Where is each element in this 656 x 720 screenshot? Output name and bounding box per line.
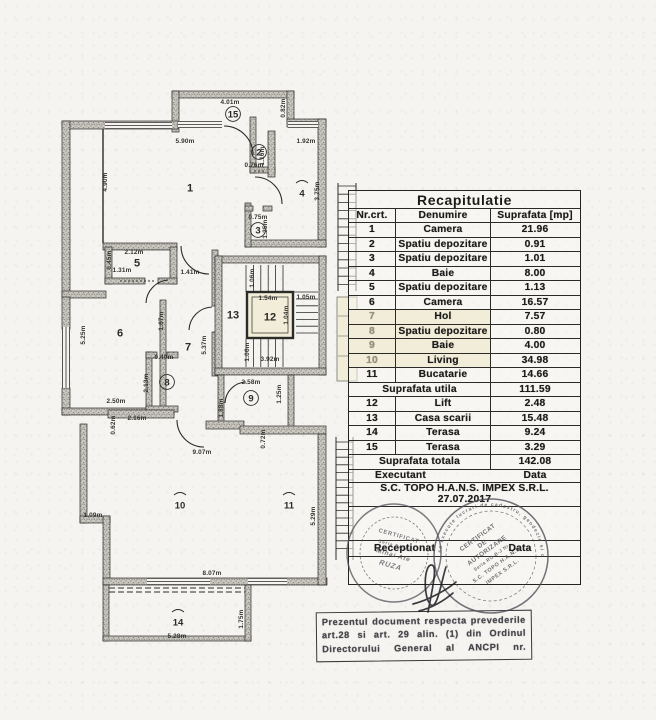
cell-denumire: Spatiu depozitare (396, 281, 491, 295)
table-row: 11Bucatarie14.66 (349, 368, 580, 383)
room-label-7: 7 (185, 341, 191, 353)
cell-denumire: Lift (396, 397, 491, 411)
cell-nr: 2 (349, 238, 396, 252)
dim-label: 3.92m (260, 356, 279, 363)
room-label-13: 13 (227, 309, 239, 321)
cell-nr: 14 (349, 426, 396, 440)
cell-suprafata: 3.29 (491, 441, 579, 455)
dim-label: 9.07m (192, 449, 211, 456)
cell-denumire: Baie (396, 339, 491, 353)
dim-label: 1.06m (244, 342, 251, 361)
cell-suprafata: 21.96 (491, 223, 579, 237)
dim-label: 5.25m (80, 325, 87, 344)
dim-label: 5.28m (167, 633, 186, 640)
table-row (349, 557, 580, 585)
table-row: 2Spatiu depozitare0.91 (349, 238, 580, 253)
cell-denumire: Baie (396, 267, 491, 281)
cell-denumire: Casa scarii (396, 412, 491, 426)
room-label-12: 12 (264, 311, 276, 323)
table-title: Recapitulatie (349, 191, 580, 209)
dim-label: 0.82m (280, 98, 287, 117)
dim-label: 1.06m (249, 268, 256, 287)
cell-nr: 9 (349, 339, 396, 353)
svg-text:9: 9 (248, 393, 253, 404)
legal-note-box: Prezentul document respecta prevederile … (316, 610, 533, 663)
svg-text:6: 6 (117, 327, 123, 339)
cell-nr: 8 (349, 325, 396, 339)
total-label: Suprafata totala (349, 455, 491, 469)
subtotal-label: Suprafata utila (349, 383, 491, 397)
table-row: ExecutantData (349, 470, 580, 484)
executant-data-label: Data (491, 470, 579, 483)
dim-label: 8.07m (202, 570, 221, 577)
cell-denumire: Spatiu depozitare (396, 325, 491, 339)
table-row: 7Hol7.57 (349, 310, 580, 325)
svg-text:12: 12 (264, 311, 276, 323)
cell-denumire: Terasa (396, 441, 491, 455)
table-row (349, 507, 580, 542)
executant-label: Executant (349, 470, 491, 483)
dim-label: 2.13m (143, 373, 150, 392)
cell-nr: 15 (349, 441, 396, 455)
cell-suprafata: 1.01 (491, 252, 579, 266)
dim-label: 1.09m (83, 512, 102, 519)
dim-label: 4.90m (102, 172, 109, 191)
dim-label: 1.88m (218, 398, 225, 417)
table-row: 12Lift2.48 (349, 397, 580, 412)
cell-suprafata: 8.00 (491, 267, 579, 281)
cell-denumire: Camera (396, 296, 491, 310)
cell-suprafata: 1.13 (491, 281, 579, 295)
svg-text:7: 7 (185, 341, 191, 353)
table-row: 8Spatiu depozitare0.80 (349, 325, 580, 340)
empty-cell (349, 557, 580, 585)
cell-nr: 6 (349, 296, 396, 310)
cell-suprafata: 2.48 (491, 397, 579, 411)
cell-suprafata: 7.57 (491, 310, 579, 324)
dim-label: 1.25m (276, 384, 283, 403)
dim-label: 1.67m (158, 311, 165, 330)
cell-nr: 12 (349, 397, 396, 411)
room-label-10: 10 (174, 493, 186, 512)
svg-text:13: 13 (227, 309, 239, 321)
subtotal-value: 111.59 (491, 383, 579, 397)
cell-suprafata: 9.24 (491, 426, 579, 440)
room-label-5: 5 (134, 257, 140, 269)
cell-denumire: Spatiu depozitare (396, 252, 491, 266)
receptionat-data-label: Data (460, 541, 580, 556)
cell-nr: 7 (349, 310, 396, 324)
table-row: 10Living34.98 (349, 354, 580, 369)
receptionat-label: Receptionat (349, 541, 460, 556)
dim-label: 0.45m (106, 250, 113, 269)
svg-text:4: 4 (299, 188, 305, 199)
col-header-denumire: Denumire (396, 209, 491, 222)
cell-denumire: Hol (396, 310, 491, 324)
table-row: 15Terasa3.29 (349, 441, 580, 456)
cell-denumire: Terasa (396, 426, 491, 440)
room-label-6: 6 (117, 327, 123, 339)
room-label-11: 11 (283, 493, 295, 512)
dim-label: 1.92m (296, 138, 315, 145)
dim-label: 1.16m (259, 146, 266, 165)
cell-nr: 10 (349, 354, 396, 368)
table-row: 1Camera21.96 (349, 223, 580, 238)
dim-label: 1.05m (296, 294, 315, 301)
dim-label: 0.40m (154, 354, 173, 361)
svg-text:11: 11 (284, 500, 295, 511)
cell-suprafata: 15.48 (491, 412, 579, 426)
table-row: 4Baie8.00 (349, 267, 580, 282)
recap-table: RecapitulatieNr.crt.DenumireSuprafata [m… (348, 190, 581, 585)
table-row: Suprafata utila111.59 (349, 383, 580, 398)
cell-nr: 5 (349, 281, 396, 295)
total-value: 142.08 (491, 455, 579, 469)
table-row: Suprafata totala142.08 (349, 455, 580, 470)
cell-nr: 4 (349, 267, 396, 281)
svg-text:3: 3 (255, 225, 260, 236)
room-label-14: 14 (172, 610, 184, 629)
stamp-area-cell (349, 507, 580, 541)
cell-suprafata: 14.66 (491, 368, 579, 382)
dim-label: 1.25m (262, 219, 269, 238)
dim-label: 2.12m (124, 249, 143, 256)
dim-label: 5.37m (201, 335, 208, 354)
cell-nr: 3 (349, 252, 396, 266)
cell-nr: 11 (349, 368, 396, 382)
dim-label: 5.90m (175, 138, 194, 145)
dim-label: 1.04m (283, 305, 290, 324)
table-row: 5Spatiu depozitare1.13 (349, 281, 580, 296)
room-label-1: 1 (187, 182, 193, 194)
dim-label: 0.62m (110, 415, 117, 434)
dim-label: 1.41m (180, 269, 199, 276)
table-row: 13Casa scarii15.48 (349, 412, 580, 427)
dim-label: 0.72m (260, 429, 267, 448)
table-row: 14Terasa9.24 (349, 426, 580, 441)
cell-denumire: Spatiu depozitare (396, 238, 491, 252)
cell-suprafata: 16.57 (491, 296, 579, 310)
svg-text:5: 5 (134, 257, 140, 269)
cell-denumire: Camera (396, 223, 491, 237)
cell-suprafata: 0.80 (491, 325, 579, 339)
cell-nr: 13 (349, 412, 396, 426)
room-label-9: 9 (244, 391, 259, 406)
col-header-suprafata: Suprafata [mp] (491, 209, 579, 222)
dim-label: 4.01m (220, 99, 239, 106)
dim-label: 3.75m (314, 181, 321, 200)
dim-label: 1.54m (258, 295, 277, 302)
cell-suprafata: 0.91 (491, 238, 579, 252)
table-row: ReceptionatData (349, 541, 580, 557)
dim-label: 1.75m (238, 609, 245, 628)
svg-text:8: 8 (164, 377, 169, 388)
cell-suprafata: 4.00 (491, 339, 579, 353)
cell-nr: 1 (349, 223, 396, 237)
dim-label: 2.58m (241, 379, 260, 386)
dim-label: 5.29m (310, 506, 317, 525)
col-header-nr: Nr.crt. (349, 209, 396, 222)
cell-suprafata: 34.98 (491, 354, 579, 368)
dim-label: 2.16m (127, 415, 146, 422)
room-label-4: 4 (296, 181, 308, 200)
svg-text:1: 1 (187, 182, 193, 194)
dim-label: 2.50m (106, 398, 125, 405)
cell-denumire: Bucatarie (396, 368, 491, 382)
dim-label: 1.31m (112, 267, 131, 274)
svg-text:15: 15 (228, 109, 239, 120)
table-row: Nr.crt.DenumireSuprafata [mp] (349, 209, 580, 223)
executant-date: 27.07.2017 (438, 494, 492, 505)
executant-name: S.C. TOPO H.A.N.S. IMPEX S.R.L. (380, 483, 549, 494)
note-line: Directorului General al ANCPI nr. (322, 640, 526, 656)
scanned-cadastral-page: 1234567891011121314154.01m5.90m1.92m0.76… (0, 0, 656, 720)
executant-name-date: S.C. TOPO H.A.N.S. IMPEX S.R.L.27.07.201… (349, 483, 580, 507)
table-row: 9Baie4.00 (349, 339, 580, 354)
svg-text:10: 10 (175, 500, 186, 511)
cell-denumire: Living (396, 354, 491, 368)
table-row: 6Camera16.57 (349, 296, 580, 311)
room-label-15: 15 (226, 107, 241, 122)
svg-text:14: 14 (173, 617, 184, 628)
table-row: 3Spatiu depozitare1.01 (349, 252, 580, 267)
